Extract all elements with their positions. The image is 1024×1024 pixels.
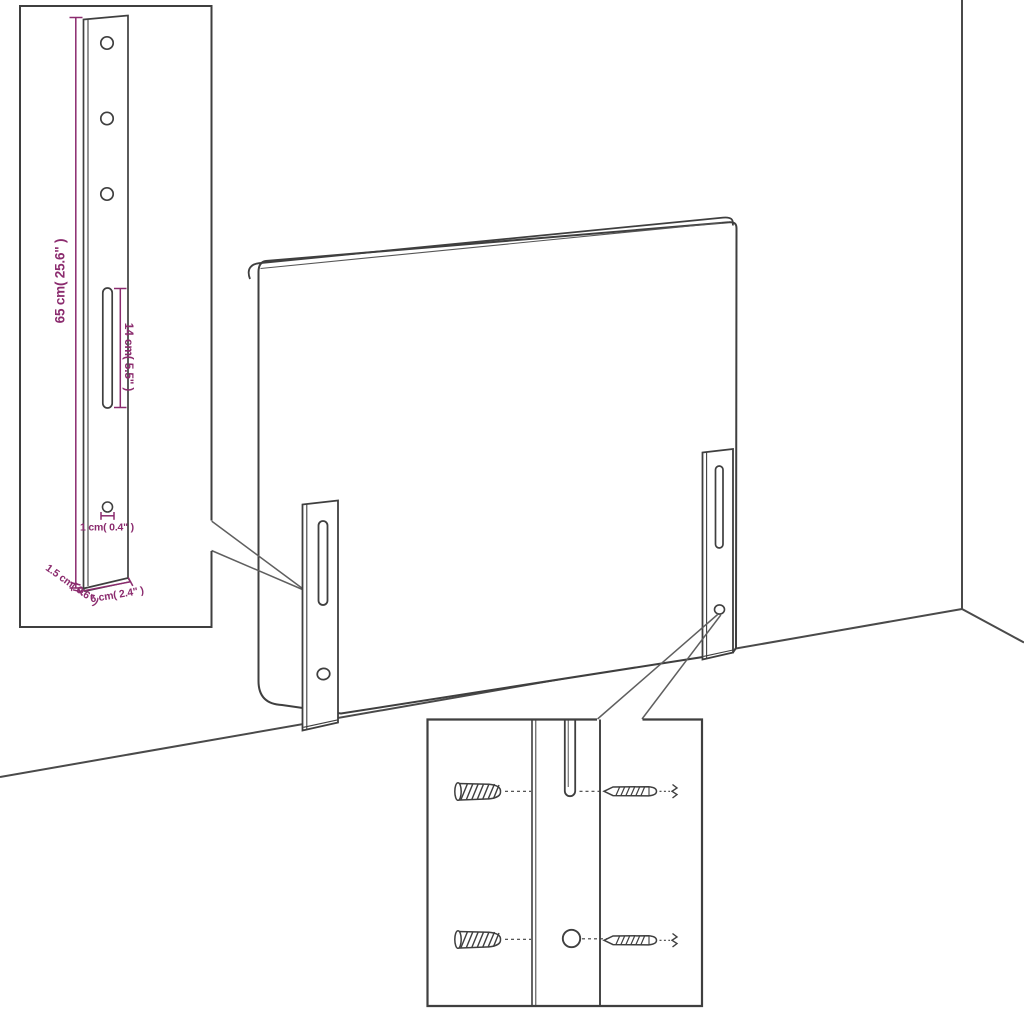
wall-anchor-top — [455, 783, 501, 801]
product-dimension-diagram: 65 cm( 25.6" ) 14 cm( 5.5" ) 1 cm( 0.4" … — [0, 0, 1024, 1024]
dim-height-label: 65 cm( 25.6" ) — [53, 239, 68, 324]
wall-anchor-bottom — [455, 931, 501, 949]
strip-hole-detail — [563, 930, 580, 947]
right-leg-slot — [716, 466, 724, 548]
right-leg — [703, 449, 734, 660]
left-leg-slot — [319, 521, 328, 605]
anchor-collar — [455, 783, 461, 801]
anchor-collar — [455, 931, 461, 949]
bracket-slot — [103, 288, 112, 408]
right-leg-hole — [715, 605, 725, 614]
bracket-hole-1 — [101, 37, 113, 49]
bracket-bottom-hole — [103, 502, 113, 512]
bracket-detail-inset: 65 cm( 25.6" ) 14 cm( 5.5" ) 1 cm( 0.4" … — [20, 6, 212, 627]
left-leg — [303, 501, 339, 731]
diagram-canvas: 65 cm( 25.6" ) 14 cm( 5.5" ) 1 cm( 0.4" … — [0, 0, 1024, 1024]
mounting-detail-inset — [428, 720, 703, 1007]
bracket-outline-group — [84, 16, 131, 592]
dim-hole-label: 1 cm( 0.4" ) — [80, 522, 134, 534]
dim-slot-label: 14 cm( 5.5" ) — [122, 323, 136, 392]
floor-line-right — [962, 609, 1024, 643]
bracket-hole-2 — [101, 112, 113, 124]
bracket-hole-3 — [101, 188, 113, 200]
